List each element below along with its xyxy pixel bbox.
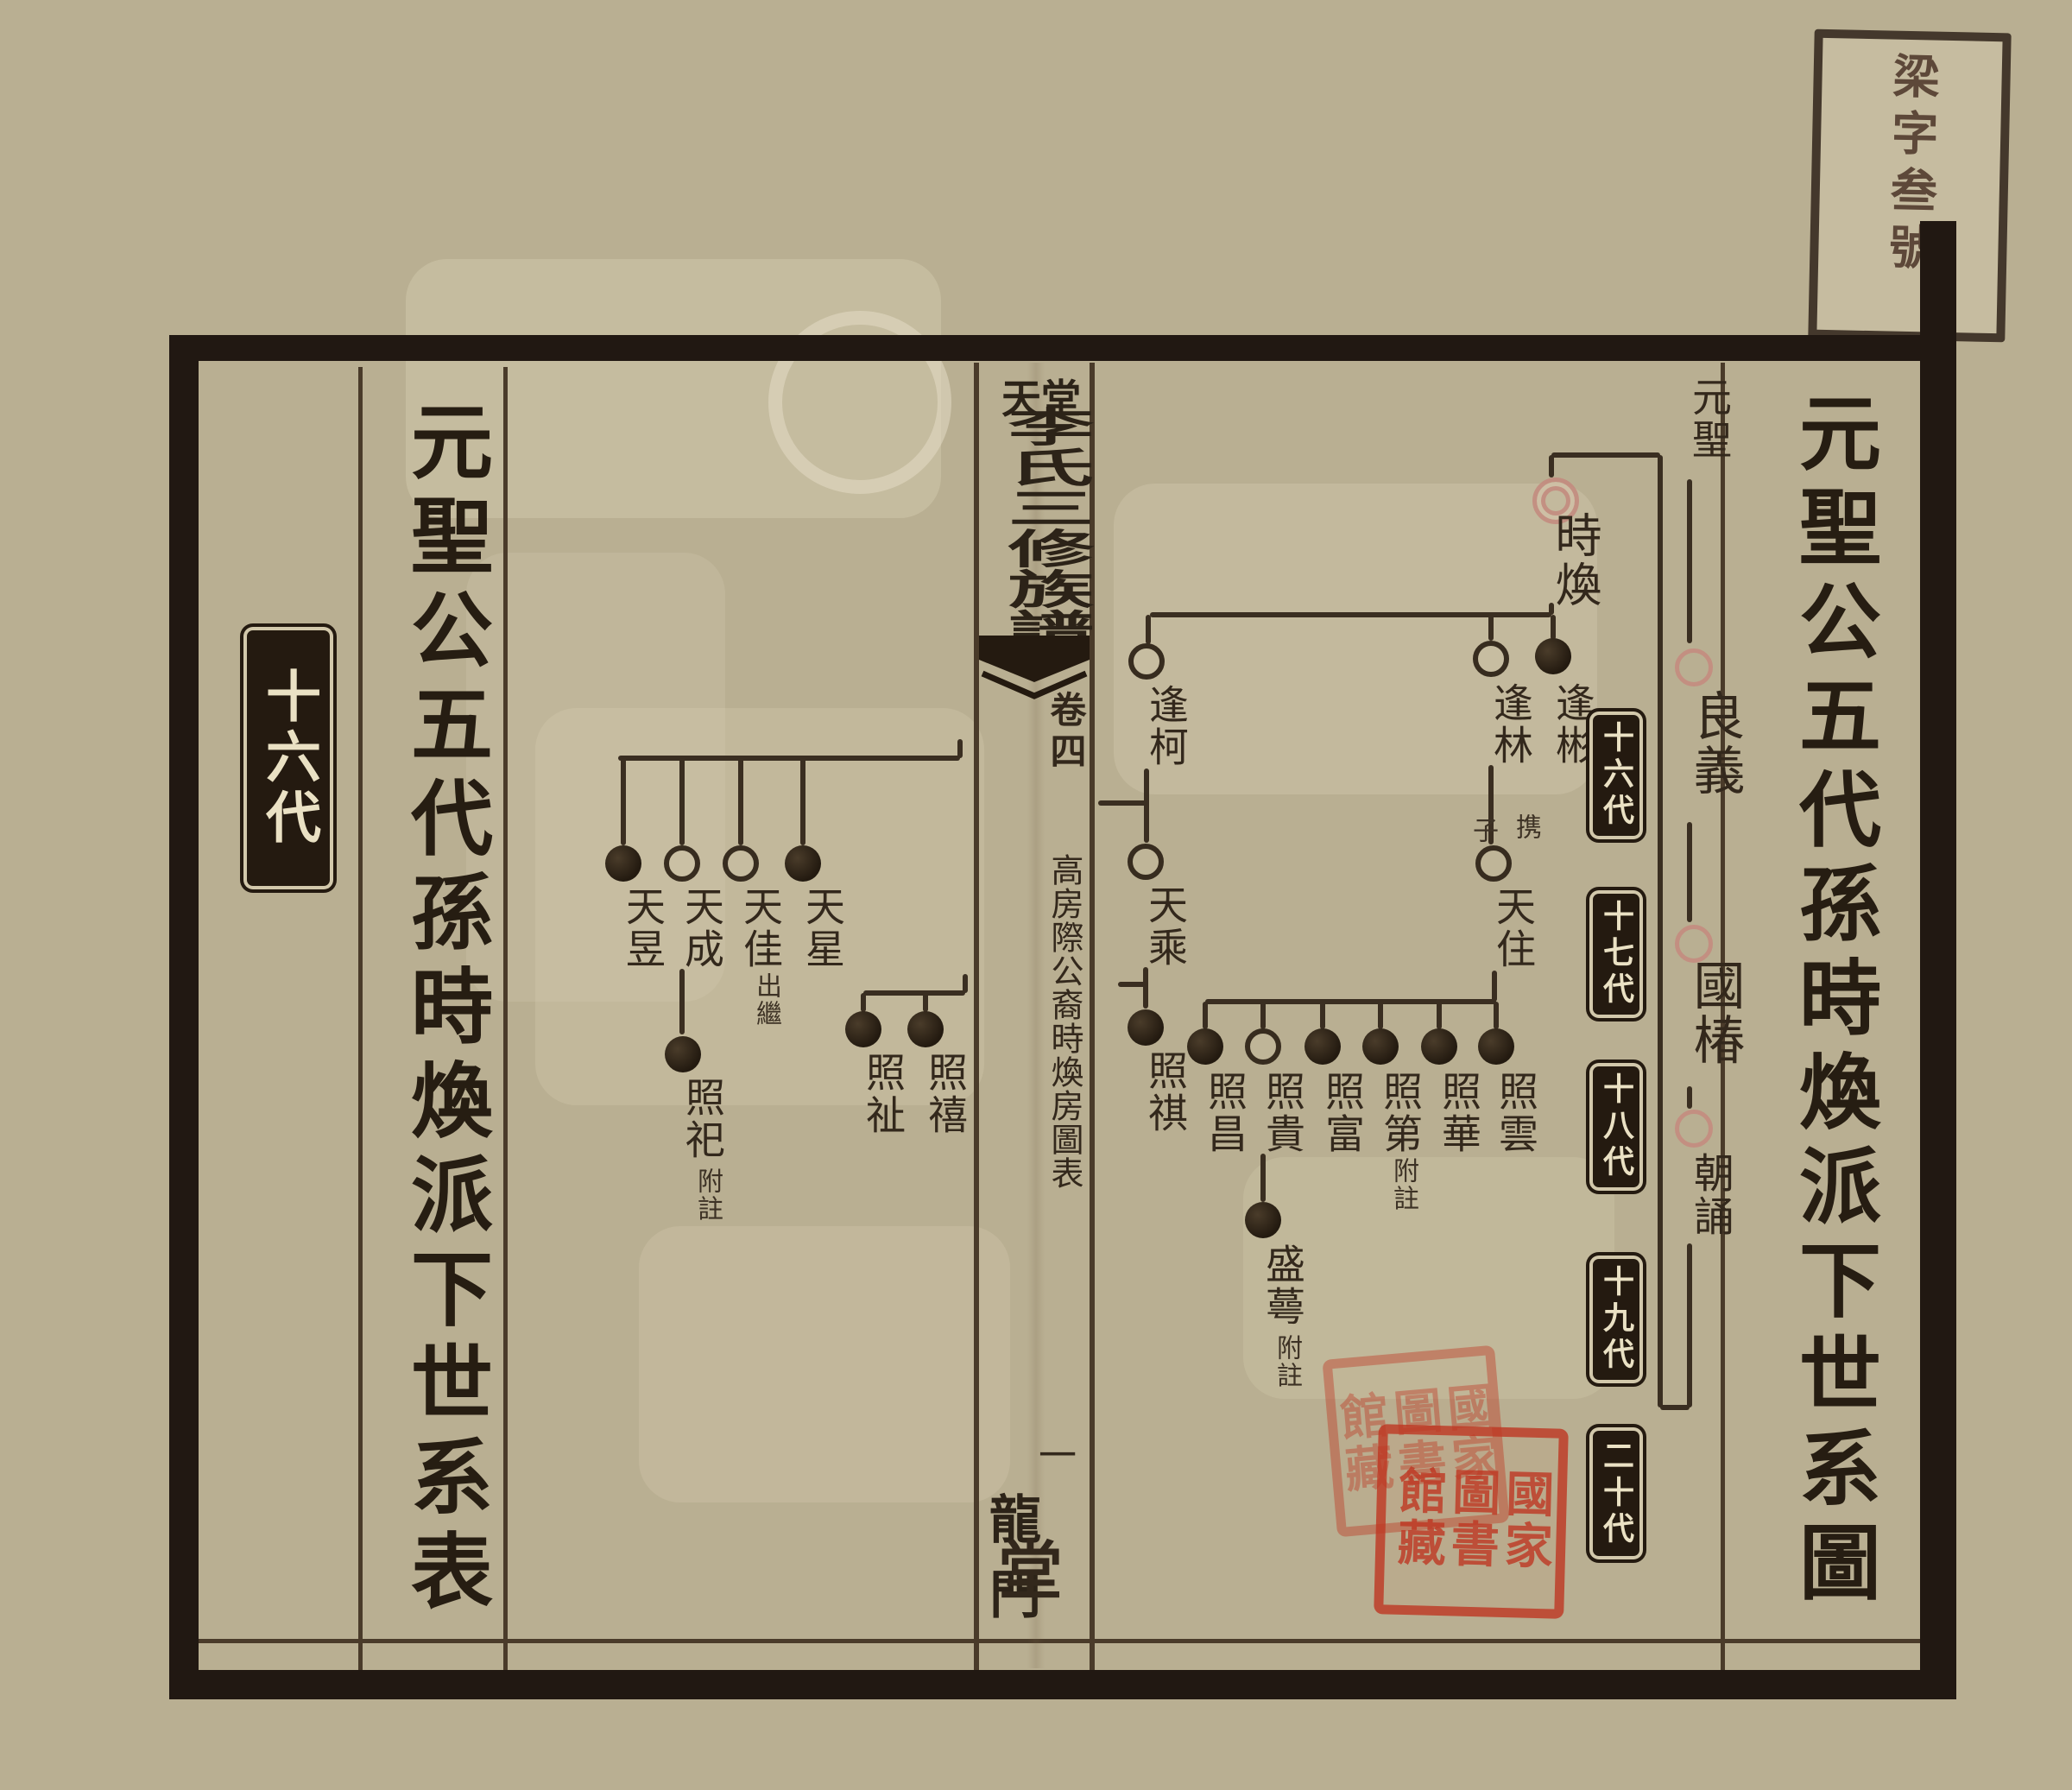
tree-connector-line: [679, 969, 685, 1034]
node-marker-tian-yu: [605, 845, 641, 882]
tree-connector-line: [800, 758, 805, 845]
tree-connector-line: [679, 758, 685, 845]
generation-badge: 十九代: [1593, 1259, 1639, 1380]
node-marker-zhao-gui: [1245, 1028, 1281, 1065]
tree-connector-line: [861, 993, 866, 1012]
node-label-liang-yi: 良義: [1638, 689, 1741, 798]
node-marker-sheng-e: [1245, 1202, 1281, 1238]
tree-connector-line: [621, 758, 626, 845]
generation-badge: 二十代: [1593, 1431, 1639, 1556]
node-note-sheng-e: 附註: [1249, 1334, 1301, 1389]
generation-badge: 十七代: [1593, 894, 1639, 1015]
tree-connector-line: [1437, 1002, 1442, 1029]
tree-connector-line: [1687, 822, 1692, 922]
tree-connector-line: [1378, 1002, 1383, 1029]
node-marker-tian-jia: [723, 845, 759, 882]
generation-badge: 十八代: [1593, 1066, 1639, 1187]
tree-connector-line: [957, 739, 963, 758]
node-marker-zhao-di: [1362, 1028, 1399, 1065]
node-marker-tian-xing: [785, 845, 821, 882]
tree-connector-line: [1320, 1002, 1325, 1029]
generation-badge: 十六代: [1593, 715, 1639, 836]
node-note-zhao-si: 附註: [670, 1167, 722, 1223]
tree-connector-line: [1687, 1243, 1692, 1407]
node-marker-feng-bin: [1535, 638, 1571, 674]
node-marker-zhao-xi: [907, 1011, 944, 1047]
tree-connector-line: [1551, 452, 1660, 458]
tree-connector-line: [1658, 455, 1663, 1407]
node-marker-feng-lin: [1473, 641, 1509, 677]
tree-connector-line: [1098, 800, 1147, 806]
node-label-chao-song: 朝誦: [1649, 1152, 1730, 1238]
node-label-zhao-chang: 照昌: [1165, 1071, 1245, 1155]
collection-seal-impression-main: 國家圖書館藏: [1374, 1424, 1569, 1619]
node-label-shi-huan: 時煥: [1505, 511, 1598, 610]
tree-connector-line: [1146, 615, 1151, 644]
tree-connector-line: [1660, 1405, 1690, 1410]
node-marker-zhao-qi: [1128, 1009, 1164, 1046]
tree-connector-line: [1687, 479, 1692, 643]
tree-connector-line: [1143, 967, 1148, 1009]
tree-connector-line: [1260, 1002, 1266, 1029]
node-label-tian-yu: 天昱: [584, 886, 663, 971]
node-label-tian-zhu: 天住: [1454, 886, 1533, 971]
generation-badge: 十六代: [247, 630, 330, 886]
node-label-zhao-si: 照祀: [643, 1077, 723, 1161]
tree-connector-line: [1118, 982, 1146, 987]
node-marker-tian-cheng: [664, 845, 700, 882]
tree-connector-line: [863, 990, 965, 996]
node-label-yuan-sheng: 元聖: [1650, 376, 1729, 461]
node-label-feng-lin: 逢林: [1451, 682, 1531, 767]
node-label-zhao-zhi: 照祉: [824, 1052, 903, 1136]
tree-connector-line: [923, 993, 928, 1012]
genealogy-page-scan: 梁字叁號 元聖公五代孫時煥派下世系表 元聖公五代孫時煥派下世系圖 天堂 李氏三修…: [0, 0, 2072, 1790]
tree-connector-line: [1687, 1086, 1692, 1109]
node-marker-tian-sheng: [1128, 844, 1164, 880]
node-label-guo-chun: 國椿: [1638, 958, 1741, 1067]
node-marker-zhao-yun: [1478, 1028, 1514, 1065]
vermilion-ring-mark: [1675, 925, 1713, 963]
node-marker-zhao-si: [665, 1036, 701, 1072]
node-marker-zhao-zhi: [845, 1011, 881, 1047]
family-tree-diagram: 元聖良義國椿朝誦時煥逢彬逢林逢柯天住携子天乘照祺照雲照華照第附註照富照貴盛蕚附註…: [0, 0, 2072, 1790]
node-marker-zhao-fu: [1304, 1028, 1341, 1065]
node-marker-zhao-hua: [1421, 1028, 1457, 1065]
tree-connector-line: [1144, 768, 1149, 843]
vermilion-ring-mark: [1675, 648, 1713, 686]
node-note-tian-zhu: 子: [1445, 817, 1497, 844]
tree-connector-line: [1203, 1002, 1208, 1029]
node-marker-zhao-chang: [1187, 1028, 1223, 1065]
node-note-zhao-di: 附註: [1366, 1157, 1418, 1212]
node-label-feng-ke: 逢柯: [1107, 684, 1186, 768]
tree-connector-line: [963, 974, 968, 993]
tree-connector-line: [1492, 971, 1497, 1002]
node-label-tian-sheng: 天乘: [1106, 884, 1185, 969]
node-marker-feng-ke: [1128, 643, 1165, 680]
tree-connector-line: [618, 756, 960, 761]
tree-connector-line: [1260, 1154, 1266, 1202]
node-label-sheng-e: 盛蕚: [1223, 1243, 1303, 1328]
node-note-tian-jia: 出繼: [729, 972, 780, 1028]
tree-connector-line: [1549, 455, 1554, 478]
tree-connector-line: [1488, 615, 1494, 641]
tree-connector-line: [738, 758, 743, 845]
node-marker-tian-zhu: [1475, 845, 1512, 882]
tree-connector-line: [1494, 1002, 1499, 1029]
tree-connector-line: [1551, 615, 1556, 640]
vermilion-ring-mark: [1675, 1110, 1713, 1148]
tree-connector-line: [1205, 999, 1496, 1004]
